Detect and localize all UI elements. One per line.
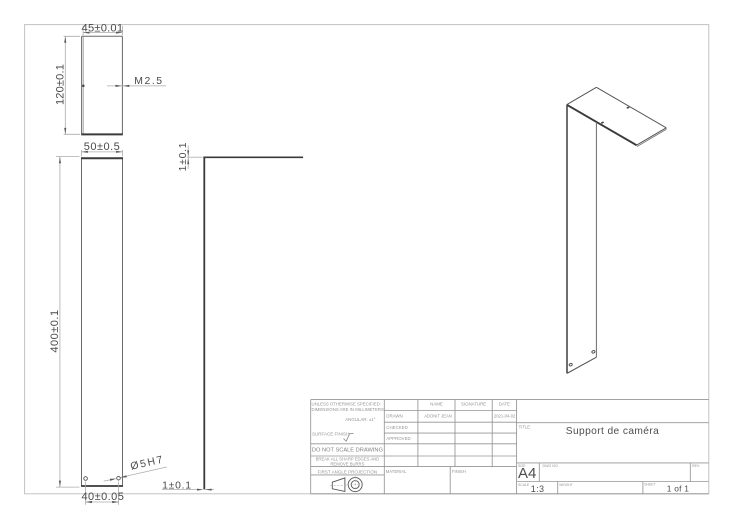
svg-text:DO NOT SCALE DRAWING: DO NOT SCALE DRAWING	[312, 447, 383, 453]
svg-text:50±0.5: 50±0.5	[84, 141, 121, 153]
svg-text:Support de caméra: Support de caméra	[566, 426, 659, 437]
svg-text:120±0.1: 120±0.1	[54, 64, 66, 105]
svg-text:NAME: NAME	[430, 401, 443, 406]
svg-text:SHEET: SHEET	[644, 482, 655, 486]
svg-text:REMOVE BURRS: REMOVE BURRS	[330, 461, 364, 466]
svg-text:A4: A4	[518, 465, 536, 482]
svg-text:DIMENSIONS ARE IN MILLIMETERS: DIMENSIONS ARE IN MILLIMETERS	[312, 407, 384, 412]
svg-text:400±0.1: 400±0.1	[49, 309, 61, 352]
svg-text:1 of 1: 1 of 1	[667, 483, 690, 493]
svg-text:APPROVED: APPROVED	[386, 436, 410, 441]
svg-text:1±0.1: 1±0.1	[162, 480, 192, 491]
svg-text:2021-04-02: 2021-04-02	[494, 414, 516, 419]
svg-text:UNLESS OTHERWISE SPECIFIED:: UNLESS OTHERWISE SPECIFIED:	[312, 401, 381, 406]
svg-text:1±0.1: 1±0.1	[178, 142, 189, 172]
svg-text:40±0.05: 40±0.05	[81, 491, 124, 503]
svg-text:WEIGHT: WEIGHT	[559, 483, 573, 487]
svg-text:MATERIAL: MATERIAL	[386, 469, 407, 474]
svg-text:1:3: 1:3	[531, 484, 545, 494]
svg-text:DWG NO.: DWG NO.	[543, 464, 559, 468]
svg-text:ADONIT JEAN: ADONIT JEAN	[424, 414, 452, 419]
svg-text:DRAWN: DRAWN	[386, 414, 402, 419]
svg-text:SIGNATURE: SIGNATURE	[461, 401, 486, 406]
svg-text:45±0.01: 45±0.01	[82, 22, 124, 34]
svg-text:M2.5: M2.5	[134, 76, 164, 87]
svg-text:REV.: REV.	[692, 464, 700, 468]
svg-text:SCALE: SCALE	[518, 483, 530, 487]
svg-text:CHECKED: CHECKED	[386, 425, 407, 430]
svg-text:TITLE: TITLE	[519, 424, 531, 429]
svg-text:FINISH: FINISH	[452, 469, 466, 474]
svg-text:DATE: DATE	[499, 401, 510, 406]
svg-text:SURFACE FINISH:: SURFACE FINISH:	[312, 431, 351, 436]
svg-text:ANGULAR: ±1°: ANGULAR: ±1°	[345, 417, 376, 422]
svg-text:FIRST ANGLE PROJECTION: FIRST ANGLE PROJECTION	[318, 470, 377, 475]
